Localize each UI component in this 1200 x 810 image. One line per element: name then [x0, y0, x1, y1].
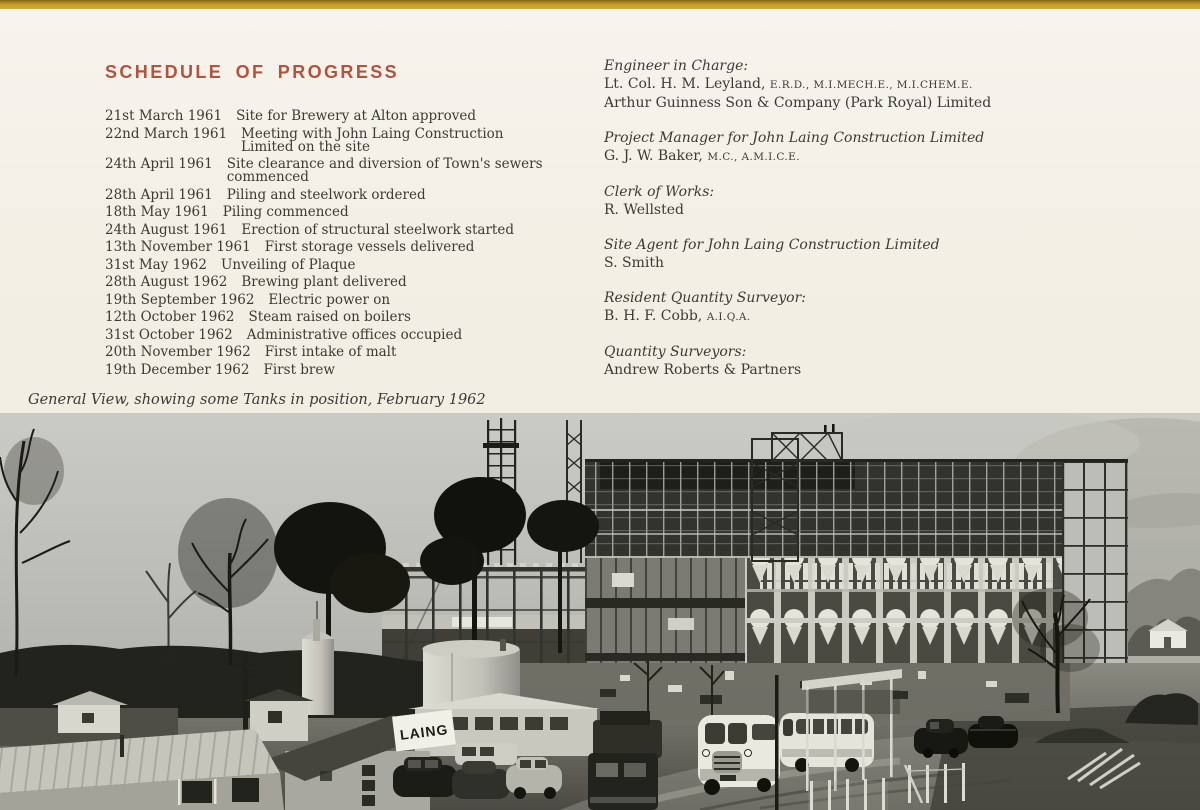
personnel-group: Site Agent for John Laing Construction L… [604, 236, 1084, 272]
schedule-row: 31st October 1962Administrative offices … [105, 329, 567, 342]
gilded-page-edge [0, 0, 1200, 9]
personnel-group: Project Manager for John Laing Construct… [604, 129, 1084, 166]
schedule-event: Meeting with John Laing Construction Lim… [241, 128, 557, 154]
personnel-group: Quantity Surveyors: Andrew Roberts & Par… [604, 343, 1084, 379]
schedule-date: 19th September 1962 [105, 294, 254, 307]
page-title: SCHEDULE OF PROGRESS [105, 62, 567, 83]
schedule-date: 21st March 1961 [105, 110, 222, 123]
schedule-event: First intake of malt [265, 346, 397, 359]
schedule-event: First storage vessels delivered [265, 241, 475, 254]
photo-caption: General View, showing some Tanks in posi… [28, 392, 486, 408]
personnel-role: Project Manager for John Laing Construct… [604, 129, 1084, 147]
schedule-date: 24th April 1961 [105, 158, 213, 184]
schedule-row: 28th April 1961Piling and steelwork orde… [105, 189, 567, 202]
personnel-qualifications: E.R.D., M.I.MECH.E., M.I.CHEM.E. [770, 79, 973, 91]
personnel-line: S. Smith [604, 254, 1084, 272]
personnel-group: Clerk of Works: R. Wellsted [604, 183, 1084, 219]
personnel-name: B. H. F. Cobb, [604, 308, 707, 324]
schedule-row: 21st March 1961Site for Brewery at Alton… [105, 110, 567, 123]
schedule-event: Site clearance and diversion of Town's s… [227, 158, 543, 184]
brochure-page: { "page": { "background": "#f2efe5", "to… [0, 0, 1200, 810]
personnel-line: G. J. W. Baker, M.C., A.M.I.C.E. [604, 147, 1084, 166]
schedule-event: Site for Brewery at Alton approved [236, 110, 476, 123]
personnel-qualifications: M.C., A.M.I.C.E. [707, 151, 800, 163]
personnel-group: Engineer in Charge: Lt. Col. H. M. Leyla… [604, 57, 1084, 112]
schedule-row: 19th September 1962Electric power on [105, 294, 567, 307]
schedule-event: Piling commenced [223, 206, 349, 219]
schedule-date: 28th August 1962 [105, 276, 227, 289]
personnel-line: Arthur Guinness Son & Company (Park Roya… [604, 94, 1084, 112]
schedule-date: 24th August 1961 [105, 224, 227, 237]
project-personnel: Engineer in Charge: Lt. Col. H. M. Leyla… [604, 57, 1084, 396]
schedule-row: 24th April 1961Site clearance and divers… [105, 158, 567, 184]
personnel-name: S. Smith [604, 255, 664, 271]
personnel-role: Engineer in Charge: [604, 57, 1084, 75]
schedule-row: 12th October 1962Steam raised on boilers [105, 311, 567, 324]
schedule-row: 28th August 1962Brewing plant delivered [105, 276, 567, 289]
personnel-line: R. Wellsted [604, 201, 1084, 219]
personnel-line: B. H. F. Cobb, A.I.Q.A. [604, 307, 1084, 326]
schedule-date: 19th December 1962 [105, 364, 250, 377]
schedule-row: 22nd March 1961Meeting with John Laing C… [105, 128, 567, 154]
schedule-row: 20th November 1962First intake of malt [105, 346, 567, 359]
schedule-row: 19th December 1962First brew [105, 364, 567, 377]
schedule-date: 22nd March 1961 [105, 128, 227, 154]
construction-photograph: LAING [0, 413, 1200, 810]
personnel-line: Andrew Roberts & Partners [604, 361, 1084, 379]
schedule-event: Brewing plant delivered [241, 276, 406, 289]
personnel-line: Lt. Col. H. M. Leyland, E.R.D., M.I.MECH… [604, 75, 1084, 94]
coach-side [780, 713, 874, 772]
personnel-qualifications: A.I.Q.A. [707, 311, 751, 323]
schedule-date: 20th November 1962 [105, 346, 251, 359]
personnel-group: Resident Quantity Surveyor: B. H. F. Cob… [604, 289, 1084, 326]
schedule-event: Erection of structural steelwork started [241, 224, 514, 237]
schedule-date: 12th October 1962 [105, 311, 235, 324]
personnel-role: Resident Quantity Surveyor: [604, 289, 1084, 307]
schedule-of-progress: SCHEDULE OF PROGRESS 21st March 1961Site… [105, 62, 567, 381]
personnel-role: Site Agent for John Laing Construction L… [604, 236, 1084, 254]
coach-front [698, 715, 780, 795]
schedule-date: 31st May 1962 [105, 259, 207, 272]
schedule-event: Administrative offices occupied [247, 329, 462, 342]
schedule-event: First brew [264, 364, 335, 377]
schedule-date: 28th April 1961 [105, 189, 213, 202]
personnel-name: Andrew Roberts & Partners [604, 362, 801, 378]
schedule-row: 24th August 1961Erection of structural s… [105, 224, 567, 237]
personnel-role: Quantity Surveyors: [604, 343, 1084, 361]
schedule-date: 18th May 1961 [105, 206, 209, 219]
schedule-row: 13th November 1961First storage vessels … [105, 241, 567, 254]
personnel-name: G. J. W. Baker, [604, 148, 707, 164]
dark-pole [775, 675, 779, 810]
schedule-event: Unveiling of Plaque [221, 259, 355, 272]
schedule-row: 18th May 1961Piling commenced [105, 206, 567, 219]
schedule-date: 13th November 1961 [105, 241, 251, 254]
personnel-name: R. Wellsted [604, 202, 684, 218]
truck [588, 753, 658, 810]
personnel-name: Lt. Col. H. M. Leyland, [604, 76, 770, 92]
personnel-role: Clerk of Works: [604, 183, 1084, 201]
schedule-date: 31st October 1962 [105, 329, 233, 342]
personnel-company: Arthur Guinness Son & Company (Park Roya… [604, 95, 991, 111]
schedule-event: Piling and steelwork ordered [227, 189, 426, 202]
schedule-event: Electric power on [268, 294, 390, 307]
schedule-event: Steam raised on boilers [249, 311, 411, 324]
schedule-row: 31st May 1962Unveiling of Plaque [105, 259, 567, 272]
